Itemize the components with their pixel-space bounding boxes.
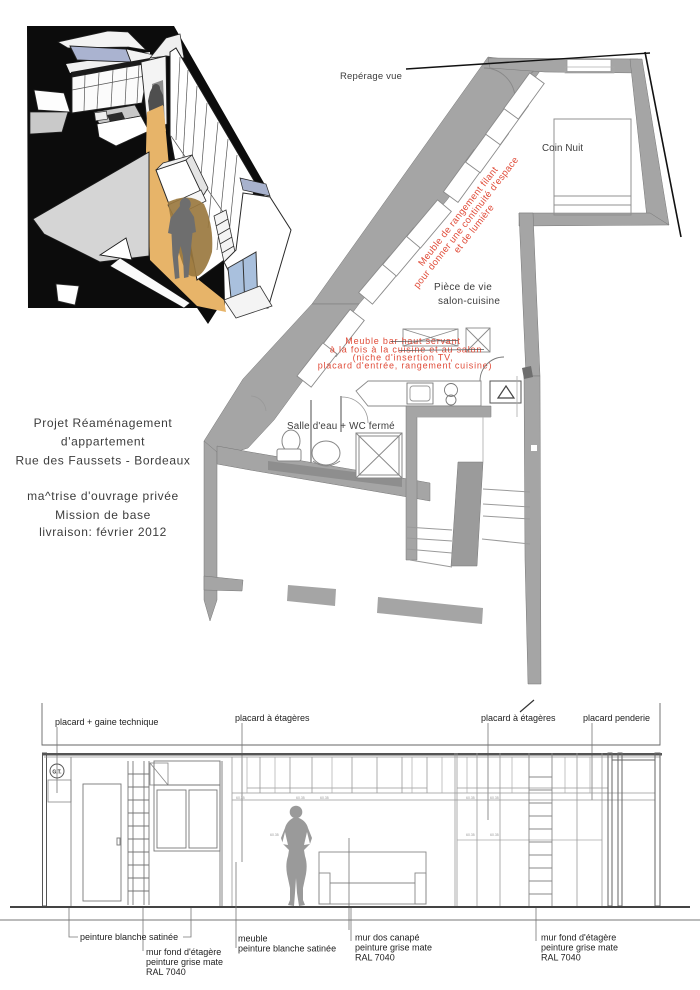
svg-text:60.35: 60.35 [270,833,279,837]
svg-text:peinture grise mate: peinture grise mate [146,957,223,967]
svg-text:Projet Réaménagement: Projet Réaménagement [34,416,173,430]
svg-text:mur fond d'étagère: mur fond d'étagère [146,947,221,957]
svg-text:placard à étagères: placard à étagères [235,713,310,723]
svg-text:placard à étagères: placard à étagères [481,713,556,723]
svg-text:Coin Nuit: Coin Nuit [542,143,583,154]
svg-text:60.35: 60.35 [236,796,245,800]
svg-text:RAL 7040: RAL 7040 [146,967,186,977]
svg-text:RAL 7040: RAL 7040 [355,952,395,962]
svg-text:peinture blanche satinée: peinture blanche satinée [238,944,336,954]
svg-text:placard + gaine technique: placard + gaine technique [55,717,158,727]
svg-text:Repérage vue: Repérage vue [340,71,402,82]
svg-text:livraison: février 2012: livraison: février 2012 [39,525,167,539]
svg-text:ma^trise d'ouvrage privée: ma^trise d'ouvrage privée [27,489,179,503]
svg-text:peinture grise mate: peinture grise mate [355,943,432,953]
svg-text:60.35: 60.35 [466,796,475,800]
svg-text:peinture grise mate: peinture grise mate [541,943,618,953]
svg-text:60.35: 60.35 [320,796,329,800]
svg-text:Rue des Faussets - Bordeaux: Rue des Faussets - Bordeaux [16,454,191,468]
svg-text:Mission de base: Mission de base [55,508,151,522]
svg-text:placard d'entrée, rangement cu: placard d'entrée, rangement cuisine) [318,361,493,371]
svg-text:placard penderie: placard penderie [583,713,650,723]
svg-text:Salle d'eau + WC fermé: Salle d'eau + WC fermé [287,421,395,432]
svg-text:60.35: 60.35 [490,833,499,837]
svg-text:mur fond d'étagère: mur fond d'étagère [541,933,616,943]
svg-text:60.35: 60.35 [296,796,305,800]
svg-text:salon-cuisine: salon-cuisine [438,296,500,307]
svg-text:peinture blanche satinée: peinture blanche satinée [80,932,178,942]
svg-text:G.T.: G.T. [52,770,62,776]
svg-text:60.35: 60.35 [490,796,499,800]
svg-text:d'appartement: d'appartement [61,435,145,449]
svg-text:60.35: 60.35 [466,833,475,837]
svg-text:Pièce de vie: Pièce de vie [434,282,492,293]
svg-text:RAL 7040: RAL 7040 [541,952,581,962]
svg-text:meuble: meuble [238,934,268,944]
svg-text:mur dos canapé: mur dos canapé [355,933,420,943]
